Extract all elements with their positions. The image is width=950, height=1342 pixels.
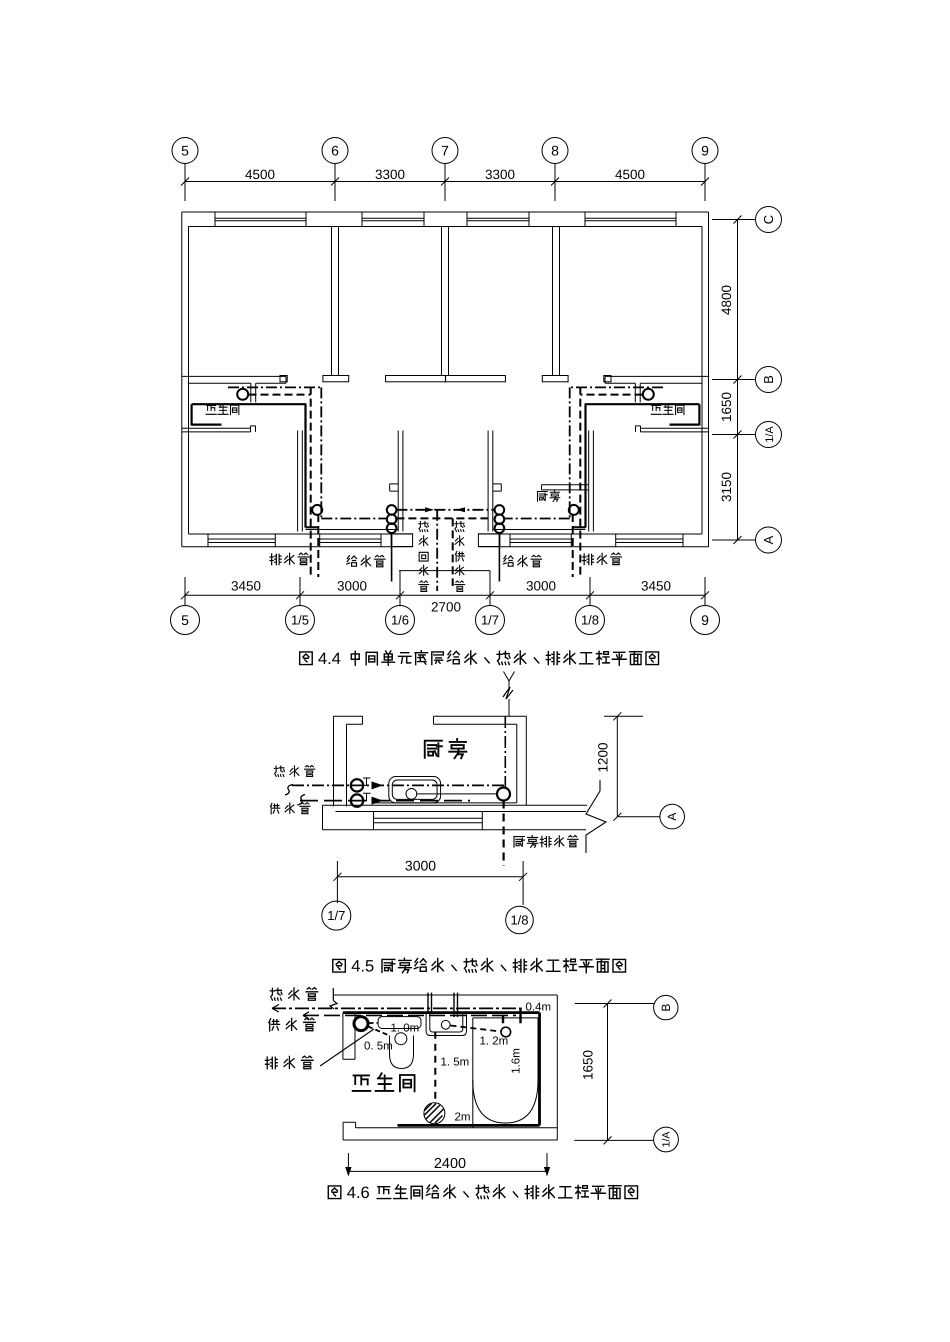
svg-text:1/6: 1/6 [391, 613, 409, 628]
svg-text:1650: 1650 [581, 1050, 596, 1080]
svg-text:4500: 4500 [245, 167, 275, 182]
svg-text:A: A [761, 535, 776, 544]
svg-text:A: A [665, 813, 679, 821]
svg-text:3300: 3300 [485, 167, 515, 182]
svg-text:C: C [761, 215, 776, 224]
svg-text:1. 0m: 1. 0m [391, 1023, 420, 1035]
svg-text:3300: 3300 [375, 167, 405, 182]
svg-text:3000: 3000 [405, 858, 436, 874]
svg-text:1/A: 1/A [661, 1132, 673, 1148]
svg-text:5: 5 [181, 612, 189, 628]
svg-text:9: 9 [701, 143, 709, 159]
svg-text:1/7: 1/7 [481, 613, 499, 628]
svg-text:5: 5 [181, 143, 189, 159]
svg-text:4.5: 4.5 [351, 958, 374, 976]
svg-text:1/5: 1/5 [291, 613, 309, 628]
svg-text:1/7: 1/7 [327, 908, 345, 923]
svg-text:4.6: 4.6 [347, 1184, 370, 1202]
svg-text:3000: 3000 [337, 579, 367, 594]
svg-text:1. 2m: 1. 2m [480, 1036, 509, 1048]
svg-text:1200: 1200 [596, 742, 611, 772]
svg-text:B: B [761, 375, 776, 384]
svg-text:8: 8 [551, 143, 559, 159]
svg-text:2700: 2700 [431, 600, 461, 615]
svg-text:3450: 3450 [231, 579, 261, 594]
svg-text:0.4m: 0.4m [526, 1002, 552, 1014]
svg-text:6: 6 [331, 143, 339, 159]
svg-text:1/A: 1/A [764, 426, 776, 443]
svg-text:9: 9 [701, 612, 709, 628]
svg-text:4.4: 4.4 [318, 650, 341, 668]
svg-text:4500: 4500 [615, 167, 645, 182]
svg-text:1. 5m: 1. 5m [441, 1057, 470, 1069]
svg-text:2400: 2400 [434, 1156, 466, 1172]
svg-text:1/8: 1/8 [581, 613, 599, 628]
svg-text:2m: 2m [455, 1112, 471, 1124]
svg-text:3450: 3450 [641, 579, 671, 594]
svg-text:3150: 3150 [719, 472, 734, 502]
svg-text:1650: 1650 [719, 392, 734, 422]
svg-text:4800: 4800 [719, 285, 734, 315]
svg-text:3000: 3000 [526, 579, 556, 594]
svg-text:1/8: 1/8 [510, 913, 528, 928]
svg-text:B: B [659, 1004, 673, 1012]
svg-text:1.6m: 1.6m [511, 1048, 523, 1074]
svg-text:0. 5m: 0. 5m [364, 1041, 393, 1053]
svg-text:7: 7 [441, 143, 449, 159]
